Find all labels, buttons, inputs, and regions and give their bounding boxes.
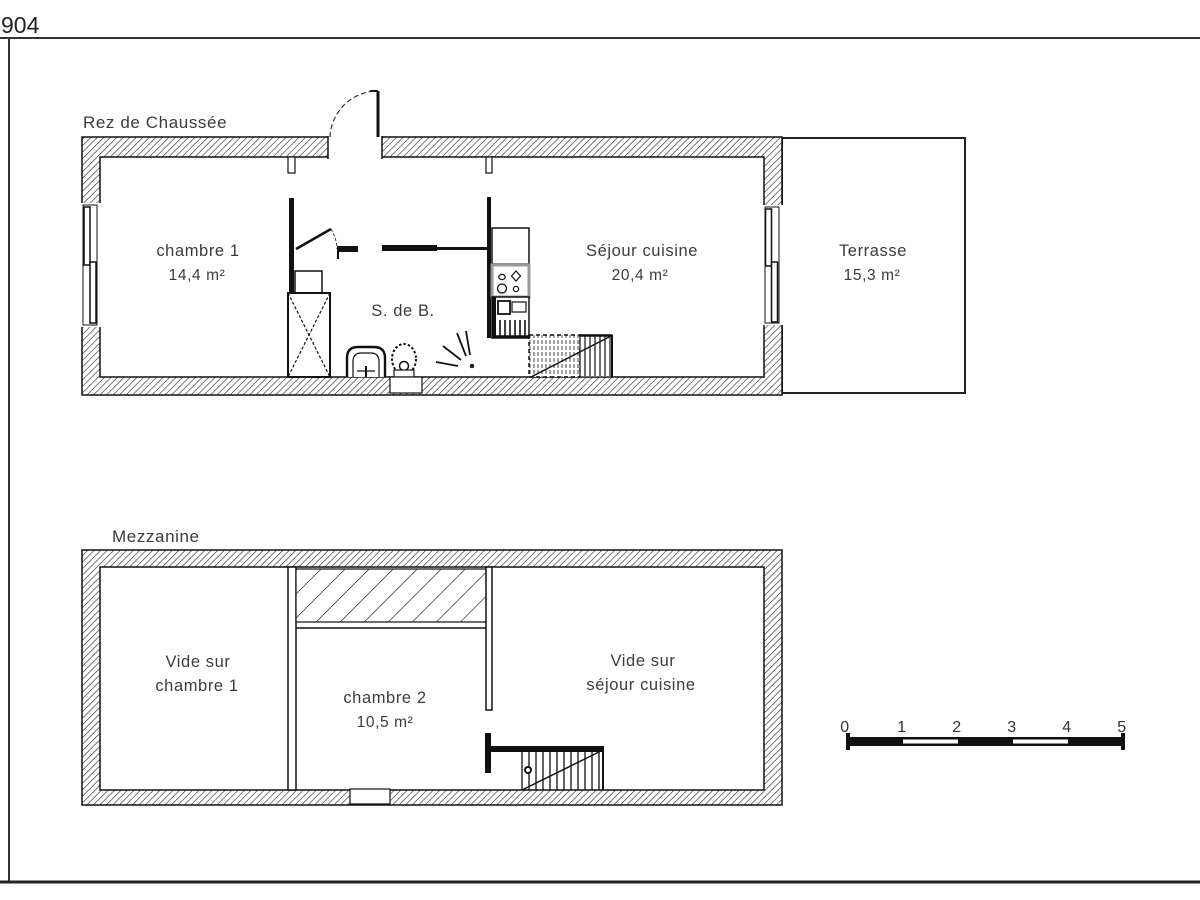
scale-tick-2: 2 bbox=[952, 719, 962, 736]
room-label-vide-sejour-line1: Vide sur bbox=[610, 652, 675, 670]
gf-kitchen-wall bbox=[487, 197, 491, 338]
mz-bottom-opening bbox=[350, 789, 390, 804]
ground-floor-title: Rez de Chaussée bbox=[83, 113, 227, 132]
washbasin-icon bbox=[295, 271, 322, 293]
kitchen-stove-icon bbox=[492, 265, 529, 297]
floor-plan-sheet: 904 Rez de Chaussée bbox=[0, 0, 1200, 900]
window-icon bbox=[80, 203, 101, 327]
scale-bar: 0 1 2 3 4 5 bbox=[840, 719, 1127, 750]
room-label-vide-sejour-line2: séjour cuisine bbox=[586, 676, 695, 694]
closet-x-icon bbox=[288, 293, 330, 377]
room-area-sejour-cuisine: 20,4 m² bbox=[612, 267, 669, 284]
room-label-chambre1: chambre 1 bbox=[156, 242, 239, 260]
ground-floor-plan: Rez de Chaussée bbox=[80, 91, 965, 395]
entry-door-swing-icon bbox=[328, 91, 382, 161]
staircase-icon bbox=[529, 335, 612, 377]
mz-partition-left bbox=[288, 567, 296, 790]
mezzanine-plan: Mezzanine bbox=[82, 527, 782, 805]
room-label-terrasse: Terrasse bbox=[839, 242, 907, 260]
kitchen-counter-icon bbox=[492, 228, 529, 264]
floor-plan-svg: 904 Rez de Chaussée bbox=[0, 0, 1200, 900]
scale-tick-3: 3 bbox=[1007, 719, 1017, 736]
hatched-void-strip bbox=[296, 569, 488, 628]
terrasse-outline bbox=[782, 138, 965, 393]
mz-partition-right bbox=[486, 567, 492, 710]
gf-hall-wall bbox=[382, 245, 437, 251]
scale-tick-4: 4 bbox=[1062, 719, 1072, 736]
mezzanine-title: Mezzanine bbox=[112, 527, 200, 546]
scale-tick-1: 1 bbox=[897, 719, 907, 736]
gf-chambre1-wall bbox=[289, 198, 294, 293]
room-area-chambre2: 10,5 m² bbox=[357, 714, 414, 731]
scale-bar-ruler bbox=[846, 733, 1125, 750]
kitchen-sink-icon bbox=[492, 297, 529, 338]
sliding-door-icon bbox=[763, 205, 783, 325]
room-label-vide-chambre1-line2: chambre 1 bbox=[155, 677, 238, 695]
bidet-icon bbox=[347, 347, 385, 377]
room-label-vide-chambre1-line1: Vide sur bbox=[165, 653, 230, 671]
gf-partition-stub-left bbox=[288, 157, 295, 173]
room-label-sdb: S. de B. bbox=[371, 302, 435, 320]
sheet-number: 904 bbox=[1, 12, 40, 38]
gf-hall-wall-thin bbox=[437, 247, 487, 250]
room-area-terrasse: 15,3 m² bbox=[844, 267, 901, 284]
mz-partition-post bbox=[485, 733, 491, 773]
room-area-chambre1: 14,4 m² bbox=[169, 267, 226, 284]
gf-partition-stub-right bbox=[486, 157, 492, 173]
room-label-chambre2: chambre 2 bbox=[343, 689, 426, 707]
room-label-sejour-cuisine: Séjour cuisine bbox=[586, 242, 698, 260]
